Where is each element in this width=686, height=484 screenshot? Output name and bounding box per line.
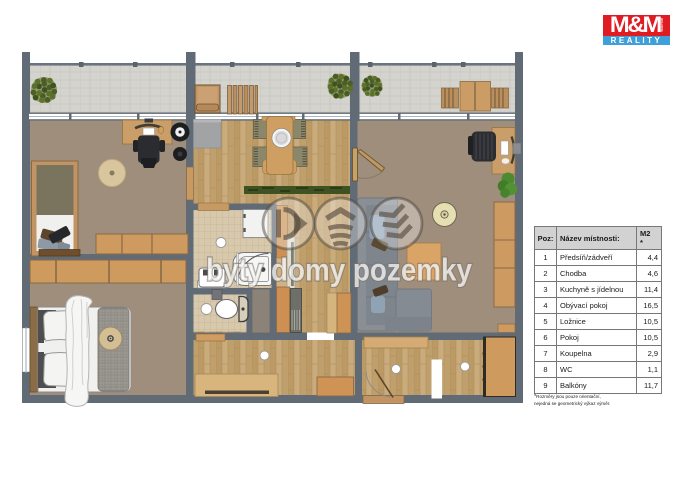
svg-text:byty domy pozemky: byty domy pozemky [206, 252, 472, 288]
